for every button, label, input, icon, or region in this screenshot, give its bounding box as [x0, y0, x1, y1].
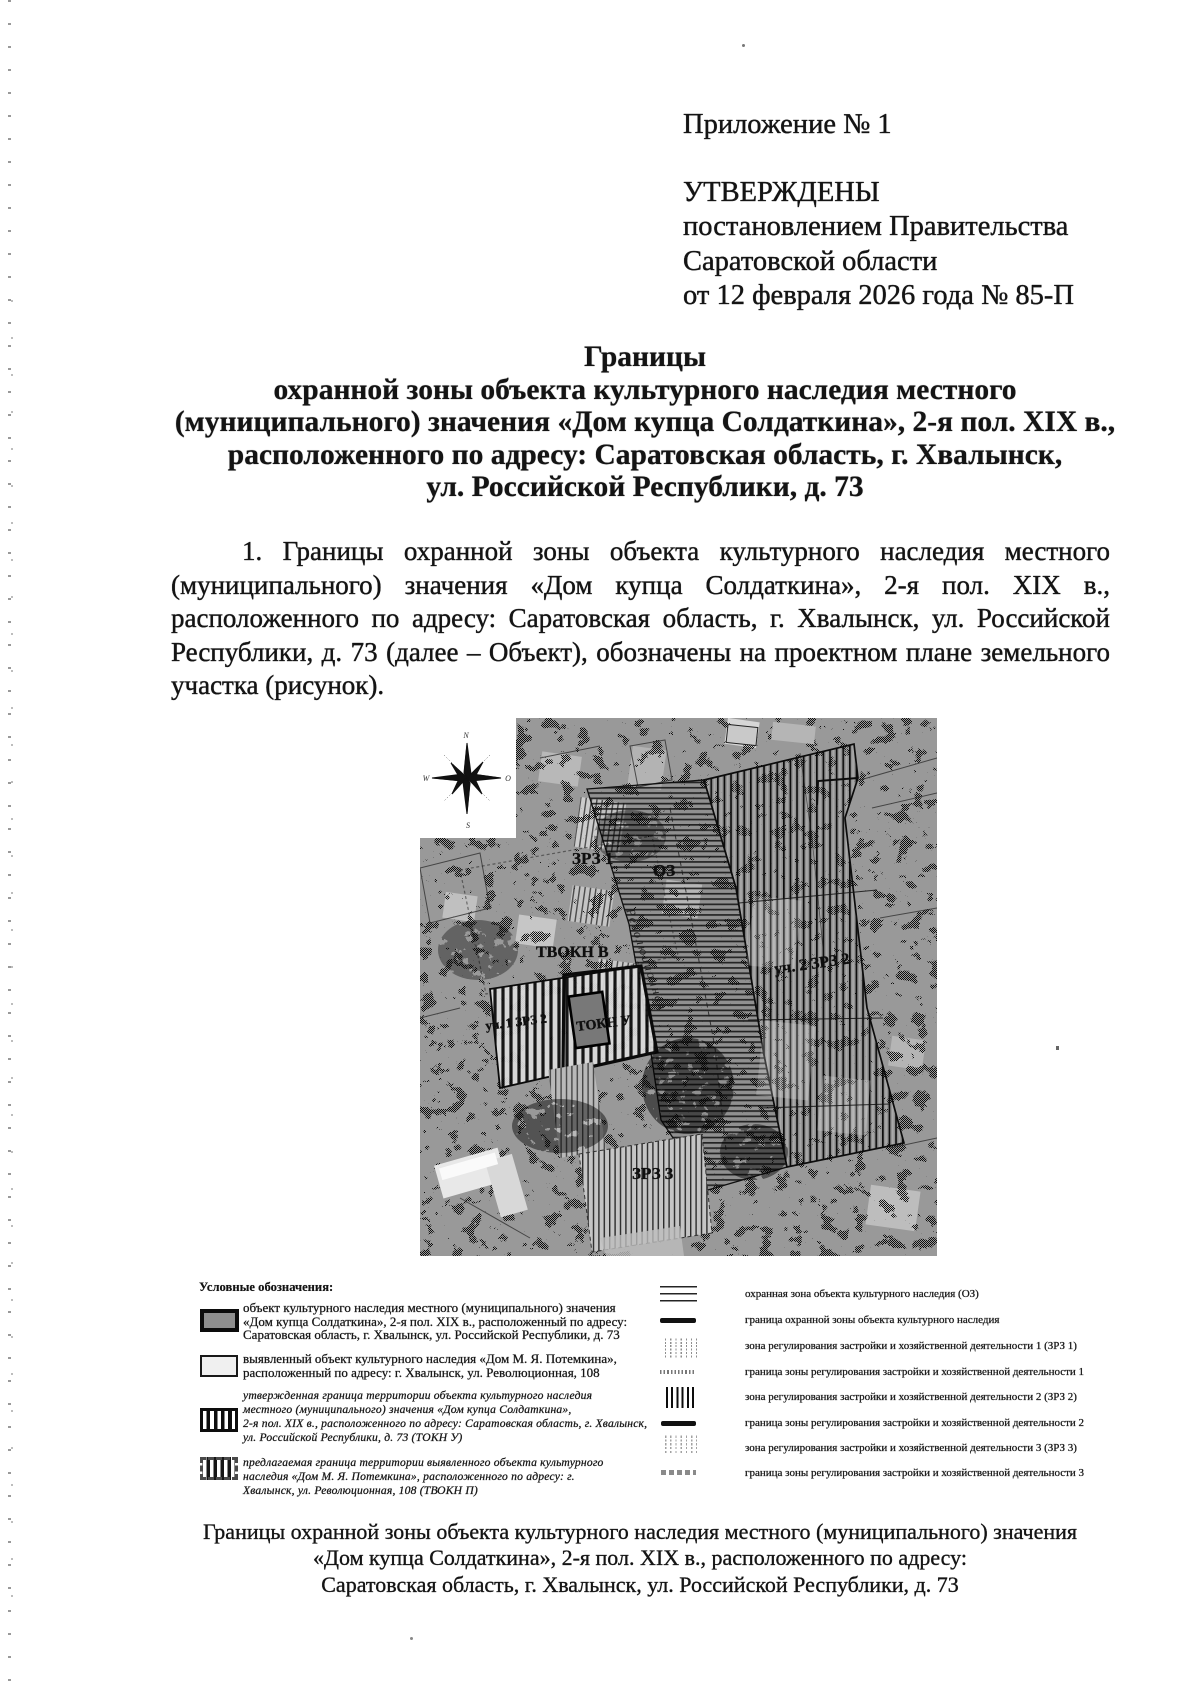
svg-text:O: O [505, 774, 511, 783]
svg-text:ЗРЗ 1: ЗРЗ 1 [572, 849, 613, 868]
svg-text:S: S [466, 821, 470, 830]
svg-text:ТВОКН В: ТВОКН В [536, 944, 609, 961]
svg-text:W: W [423, 774, 431, 783]
svg-text:N: N [462, 731, 469, 740]
svg-text:ЗРЗ 3: ЗРЗ 3 [632, 1164, 673, 1183]
svg-text:ОЗ: ОЗ [653, 861, 675, 880]
